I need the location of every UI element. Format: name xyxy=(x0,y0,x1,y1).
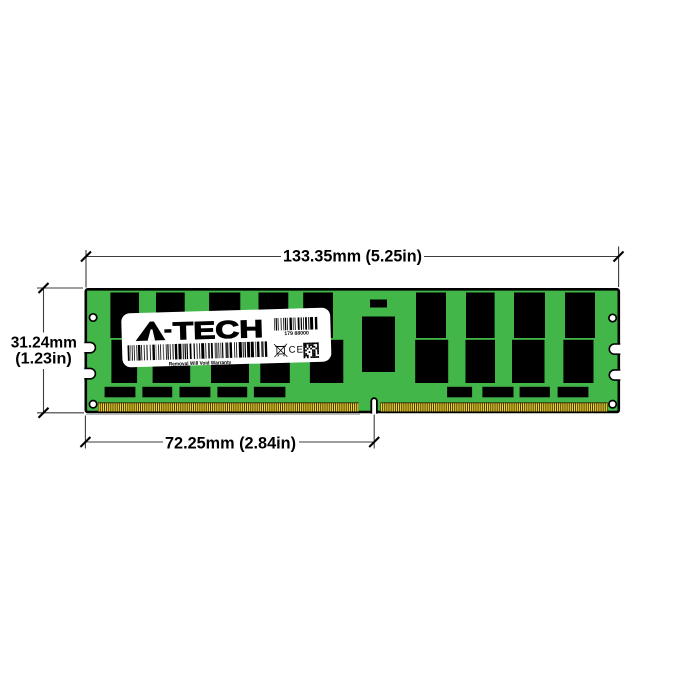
svg-text:CE: CE xyxy=(289,344,304,355)
svg-text:179 88000: 179 88000 xyxy=(284,330,309,337)
svg-text:(1.23in): (1.23in) xyxy=(15,351,72,368)
svg-text:31.24mm: 31.24mm xyxy=(11,335,77,352)
svg-text:133.35mm (5.25in): 133.35mm (5.25in) xyxy=(283,247,422,266)
svg-text:TECH: TECH xyxy=(173,316,264,346)
svg-text:72.25mm (2.84in): 72.25mm (2.84in) xyxy=(165,434,296,452)
